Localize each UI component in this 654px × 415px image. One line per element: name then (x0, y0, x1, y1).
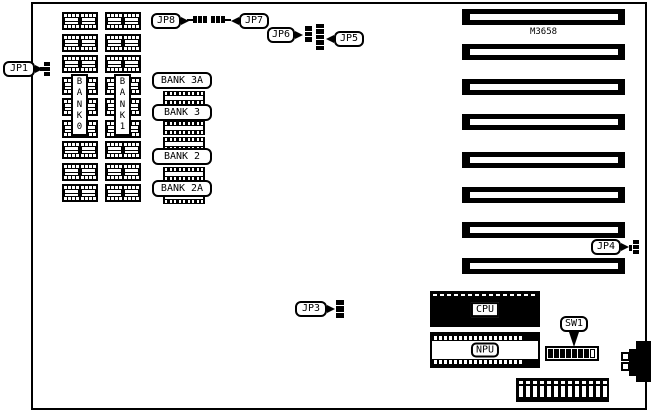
pin (93, 25, 96, 28)
pin (174, 200, 176, 203)
bar (65, 169, 78, 172)
bar (82, 22, 95, 24)
bar (125, 18, 138, 21)
pin (132, 154, 135, 157)
pin (124, 57, 127, 60)
pin (124, 14, 127, 17)
pin (89, 25, 92, 28)
pin (93, 122, 96, 125)
pin (111, 186, 114, 189)
jp6-callout: JP6 (267, 27, 295, 43)
pin (165, 200, 167, 203)
pin (197, 131, 199, 134)
pin (132, 100, 135, 103)
pin (132, 133, 135, 136)
chip-pin-row (64, 36, 96, 39)
pin (119, 176, 122, 179)
bar (125, 190, 138, 193)
chip-marking (64, 40, 96, 43)
bar (65, 173, 78, 175)
socket-pin-row (164, 168, 204, 171)
chip-marking (64, 22, 96, 24)
pin (132, 176, 135, 179)
pin (124, 47, 127, 50)
pin (81, 68, 84, 71)
pin (136, 14, 139, 17)
bar (82, 65, 95, 67)
ram-chip (62, 55, 98, 73)
pin (119, 47, 122, 50)
pin (197, 122, 199, 125)
chip-pin-row (107, 47, 139, 50)
bar (65, 18, 78, 21)
pin (124, 25, 127, 28)
pin (119, 25, 122, 28)
chip-marking (107, 40, 139, 43)
pin-slot (568, 386, 572, 397)
pin (136, 143, 139, 146)
pin (188, 131, 190, 134)
pin (76, 154, 79, 157)
pin (111, 36, 114, 39)
pin (454, 336, 457, 340)
sw1-callout: SW1 (560, 316, 588, 332)
chip-pin-row (107, 176, 139, 179)
pin (93, 79, 96, 82)
bank-2a-label: BANK 2A (152, 180, 212, 197)
chip-marking (64, 44, 96, 46)
pin (85, 165, 88, 168)
ram-chip (105, 34, 141, 52)
pin (124, 68, 127, 71)
pin (444, 360, 447, 364)
pin (170, 200, 172, 203)
pin (89, 197, 92, 200)
chip-marking (107, 190, 139, 193)
pin (119, 14, 122, 17)
pin (132, 36, 135, 39)
pin (136, 47, 139, 50)
pin (81, 186, 84, 189)
pin (119, 186, 122, 189)
npu-pin-row (432, 334, 538, 341)
pin (132, 186, 135, 189)
pin (115, 154, 118, 157)
pin (76, 14, 79, 17)
pin (115, 57, 118, 60)
slot-contact-stripe (470, 14, 618, 20)
bar (65, 190, 78, 193)
pin (72, 143, 75, 146)
pin (89, 186, 92, 189)
pin (174, 92, 176, 95)
pin (72, 68, 75, 71)
pin (132, 14, 135, 17)
pin (201, 200, 203, 203)
chip-marking (107, 18, 139, 21)
pin (72, 25, 75, 28)
bar (82, 173, 95, 175)
jp4-jumper (629, 245, 632, 251)
pin (72, 165, 75, 168)
pin (85, 25, 88, 28)
pad (589, 381, 593, 384)
jp3-callout: JP3 (295, 301, 327, 317)
pin-slot (547, 386, 551, 397)
pin (449, 360, 452, 364)
pin (434, 336, 437, 340)
pin (111, 68, 114, 71)
pin (124, 36, 127, 39)
chip-pin-row (107, 14, 139, 17)
pin (111, 176, 114, 179)
pin (459, 336, 462, 340)
pin (89, 47, 92, 50)
dip-switch-segment (572, 349, 577, 358)
pin (128, 25, 131, 28)
chip-pin-row (64, 57, 96, 60)
jp6-arrow-icon (295, 31, 303, 39)
chip-marking (64, 190, 96, 193)
bank-letter: 0 (77, 123, 82, 132)
pin (124, 143, 127, 146)
pin (439, 360, 442, 364)
pin (192, 168, 194, 171)
memory-socket (163, 121, 205, 135)
socket-pin-row (164, 131, 204, 134)
pin (115, 165, 118, 168)
bar (82, 40, 95, 43)
chip-pin-row (107, 154, 139, 157)
jp8-arrow-icon (181, 17, 189, 25)
pin (136, 25, 139, 28)
pin (136, 154, 139, 157)
pin (188, 168, 190, 171)
pin-slot (589, 386, 593, 397)
pin (107, 14, 110, 17)
pin (474, 360, 477, 364)
bar (65, 147, 78, 150)
expansion-slot (462, 152, 625, 168)
bar (108, 65, 121, 67)
jp8-jumper (193, 16, 207, 23)
pin (439, 336, 442, 340)
chip-marking (64, 151, 96, 153)
pin (179, 168, 181, 171)
pin (119, 154, 122, 157)
bar (82, 61, 95, 64)
pin (201, 138, 203, 141)
pad (603, 381, 607, 384)
pin (89, 36, 92, 39)
pin (111, 47, 114, 50)
chip-marking (64, 147, 96, 150)
pin (119, 68, 122, 71)
pin-slot (526, 386, 530, 397)
pin (124, 165, 127, 168)
bank-2-label: BANK 2 (152, 148, 212, 165)
bank-letter: N (120, 101, 125, 110)
bar (125, 173, 138, 175)
pad (575, 381, 579, 384)
pin (499, 336, 502, 340)
pin (68, 154, 71, 157)
pin (136, 122, 139, 125)
jp4-arrow-icon (621, 243, 629, 251)
pin (64, 25, 67, 28)
pin (504, 336, 507, 340)
pin (183, 200, 185, 203)
pin (174, 168, 176, 171)
expansion-slot (462, 44, 625, 60)
pin (76, 47, 79, 50)
pin (170, 131, 172, 134)
pin (89, 154, 92, 157)
bank-letter: K (120, 112, 125, 121)
jp6-jumper (305, 26, 312, 42)
pin (514, 360, 517, 364)
pin (64, 68, 67, 71)
chip-pin-row (107, 186, 139, 189)
pin (76, 25, 79, 28)
pin (183, 131, 185, 134)
pin (484, 360, 487, 364)
pin (128, 154, 131, 157)
ram-chip (62, 141, 98, 159)
pin (64, 47, 67, 50)
pin (464, 360, 467, 364)
bank-letter: 1 (120, 123, 125, 132)
chip-pin-row (64, 165, 96, 168)
pin (183, 168, 185, 171)
chip-marking (64, 65, 96, 67)
bar (108, 169, 121, 172)
slot-contact-stripe (470, 84, 618, 90)
pin (484, 336, 487, 340)
pin (93, 176, 96, 179)
pin (68, 165, 71, 168)
pin (188, 122, 190, 125)
bar (125, 22, 138, 24)
pin (93, 133, 96, 136)
pin (72, 186, 75, 189)
slot-contact-stripe (470, 192, 618, 198)
bar (108, 44, 121, 46)
chip-marking (107, 65, 139, 67)
pin (132, 122, 135, 125)
pin-slot (582, 386, 586, 397)
pin (68, 36, 71, 39)
pin (85, 57, 88, 60)
bar (125, 147, 138, 150)
pin (107, 122, 110, 125)
pin (128, 68, 131, 71)
pin (124, 154, 127, 157)
pin (93, 14, 96, 17)
pin (107, 36, 110, 39)
bar (65, 61, 78, 64)
pin (68, 14, 71, 17)
pad (526, 381, 530, 384)
chip-marking (64, 18, 96, 21)
chip-marking (107, 194, 139, 196)
chip-pin-row (107, 165, 139, 168)
pin (188, 200, 190, 203)
pin (464, 336, 467, 340)
bar (108, 173, 121, 175)
bar (82, 190, 95, 193)
pin (64, 186, 67, 189)
pin (479, 360, 482, 364)
pin (183, 92, 185, 95)
pin (179, 138, 181, 141)
pin (76, 57, 79, 60)
chip-pin-row (64, 47, 96, 50)
pin (89, 133, 92, 136)
pad (554, 381, 558, 384)
pin (509, 336, 512, 340)
pin (89, 176, 92, 179)
pin (107, 68, 110, 71)
board-model-text: M3658 (462, 27, 625, 37)
pin (93, 165, 96, 168)
pin (68, 25, 71, 28)
pin (89, 111, 92, 114)
bar (82, 169, 95, 172)
pin (119, 36, 122, 39)
pin (136, 79, 139, 82)
socket-pin-row (164, 122, 204, 125)
pin (89, 143, 92, 146)
pin (197, 200, 199, 203)
pad (596, 381, 600, 384)
pin (192, 200, 194, 203)
pin-slot (603, 386, 607, 397)
pin (192, 122, 194, 125)
pin (128, 36, 131, 39)
pin (93, 36, 96, 39)
pin-slot (575, 386, 579, 397)
jp7-arrow-icon (231, 17, 239, 25)
pin (64, 143, 67, 146)
pin (449, 336, 452, 340)
jp8-callout: JP8 (151, 13, 181, 29)
expansion-slot (462, 258, 625, 274)
jp3-arrow-icon (327, 305, 335, 313)
jp1-callout: JP1 (3, 61, 35, 77)
sw1-dip-switch (545, 346, 599, 361)
ram-chip (62, 163, 98, 181)
ram-chip (62, 12, 98, 30)
pin (76, 36, 79, 39)
socket-body (165, 96, 203, 100)
pin (165, 168, 167, 171)
pin (93, 186, 96, 189)
pin (72, 176, 75, 179)
pin (136, 36, 139, 39)
pin (115, 186, 118, 189)
pin (136, 186, 139, 189)
bar (65, 151, 78, 153)
pin (136, 197, 139, 200)
bank1-label: BANK1 (114, 74, 131, 136)
pin (76, 176, 79, 179)
pin (124, 176, 127, 179)
bar (65, 40, 78, 43)
ram-chip (62, 184, 98, 202)
pad (547, 381, 551, 384)
slot-contact-stripe (470, 227, 618, 233)
pin (494, 360, 497, 364)
socket-pin-row (164, 200, 204, 203)
pin (111, 154, 114, 157)
bar (125, 44, 138, 46)
chip-marking (64, 194, 96, 196)
jp4-jumper (633, 240, 639, 254)
pin (111, 14, 114, 17)
bar (65, 194, 78, 196)
pin (107, 47, 110, 50)
pin (165, 138, 167, 141)
pin (64, 57, 67, 60)
expansion-slot (462, 222, 625, 238)
bar (125, 61, 138, 64)
pin (192, 131, 194, 134)
pin (469, 336, 472, 340)
bar (125, 169, 138, 172)
pin (165, 122, 167, 125)
pin (81, 25, 84, 28)
pin (197, 138, 199, 141)
pin (136, 100, 139, 103)
bar (65, 44, 78, 46)
ram-chip (105, 163, 141, 181)
pin (107, 165, 110, 168)
bar (125, 65, 138, 67)
pin-slot (561, 386, 565, 397)
pad (540, 381, 544, 384)
pin (81, 47, 84, 50)
pin (111, 25, 114, 28)
pin (474, 336, 477, 340)
pin (128, 176, 131, 179)
jp7-callout: JP7 (239, 13, 269, 29)
pin (64, 154, 67, 157)
pin (107, 25, 110, 28)
pin (179, 92, 181, 95)
pin (519, 336, 522, 340)
keyboard-connector (636, 374, 651, 382)
chip-pin-row (64, 186, 96, 189)
dip-switch-segment (566, 349, 571, 358)
pin (115, 143, 118, 146)
pin-slot (519, 386, 523, 397)
pin (132, 165, 135, 168)
pin (64, 79, 67, 82)
chip-pin-row (107, 68, 139, 71)
pin (132, 57, 135, 60)
pin (170, 168, 172, 171)
pin (479, 336, 482, 340)
pin (201, 131, 203, 134)
chip-pin-row (64, 143, 96, 146)
pin (132, 25, 135, 28)
pin (192, 138, 194, 141)
pin (93, 197, 96, 200)
npu-socket: NPU (430, 332, 540, 368)
pin (81, 143, 84, 146)
pad (568, 381, 572, 384)
